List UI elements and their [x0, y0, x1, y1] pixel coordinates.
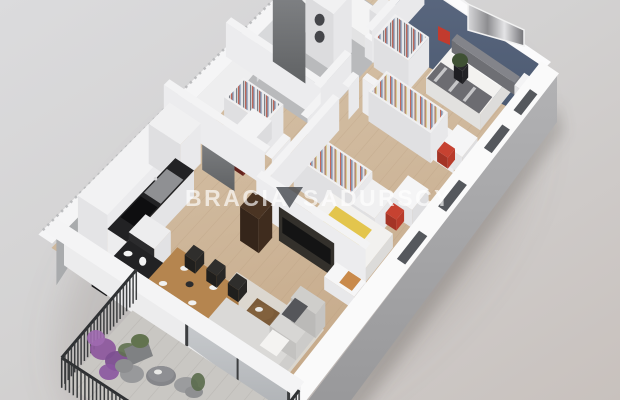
svg-text:BRACIA: BRACIA	[185, 185, 289, 211]
svg-text:SADURSCY: SADURSCY	[303, 185, 452, 211]
